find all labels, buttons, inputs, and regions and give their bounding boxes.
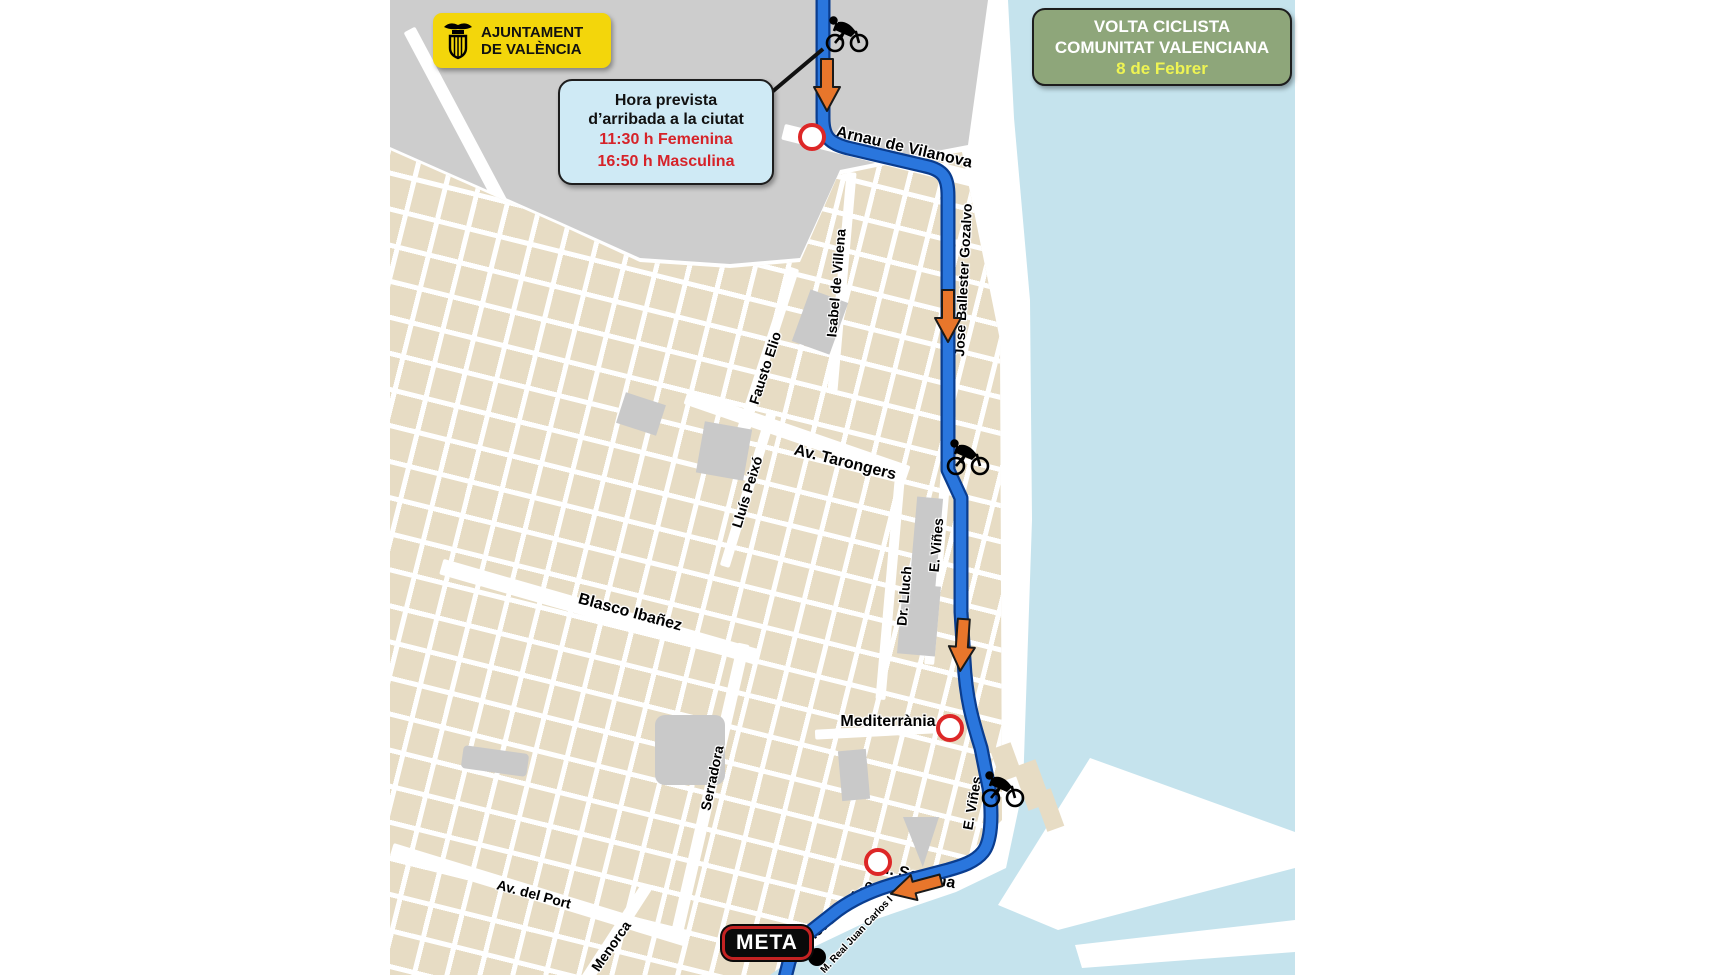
route-map: Arnau de Vilanova Isabel de Villena Jose… bbox=[0, 0, 1733, 975]
valencia-crest-icon bbox=[441, 20, 475, 62]
ajuntament-badge: AJUNTAMENT DE VALÈNCIA bbox=[433, 13, 611, 68]
event-title-line1: VOLTA CICLISTA bbox=[1094, 16, 1230, 37]
event-date: 8 de Febrer bbox=[1116, 58, 1208, 79]
checkpoint-marker bbox=[936, 714, 964, 742]
cyclist-icon bbox=[824, 13, 870, 53]
arrival-time-male: 16:50 h Masculina bbox=[598, 151, 735, 173]
arrival-info-box: Hora prevista d’arribada a la ciutat 11:… bbox=[558, 79, 774, 185]
finish-badge: META bbox=[722, 926, 812, 960]
arrival-time-female: 11:30 h Femenina bbox=[599, 129, 732, 151]
checkpoint-marker bbox=[864, 848, 892, 876]
race-route bbox=[0, 0, 1733, 975]
direction-arrow-icon bbox=[812, 57, 842, 113]
direction-arrow-icon bbox=[945, 616, 979, 674]
event-title-line2: COMUNITAT VALENCIANA bbox=[1055, 37, 1269, 58]
ajuntament-line1: AJUNTAMENT bbox=[481, 24, 583, 41]
arrival-heading-line2: d’arribada a la ciutat bbox=[588, 110, 744, 129]
ajuntament-line2: DE VALÈNCIA bbox=[481, 41, 583, 58]
checkpoint-marker bbox=[798, 123, 826, 151]
direction-arrow-icon bbox=[933, 288, 963, 344]
cyclist-icon bbox=[945, 436, 991, 476]
cyclist-icon bbox=[980, 768, 1026, 808]
event-badge: VOLTA CICLISTA COMUNITAT VALENCIANA 8 de… bbox=[1032, 8, 1292, 86]
finish-badge-label: META bbox=[736, 931, 798, 954]
arrival-heading-line1: Hora prevista bbox=[615, 91, 717, 110]
